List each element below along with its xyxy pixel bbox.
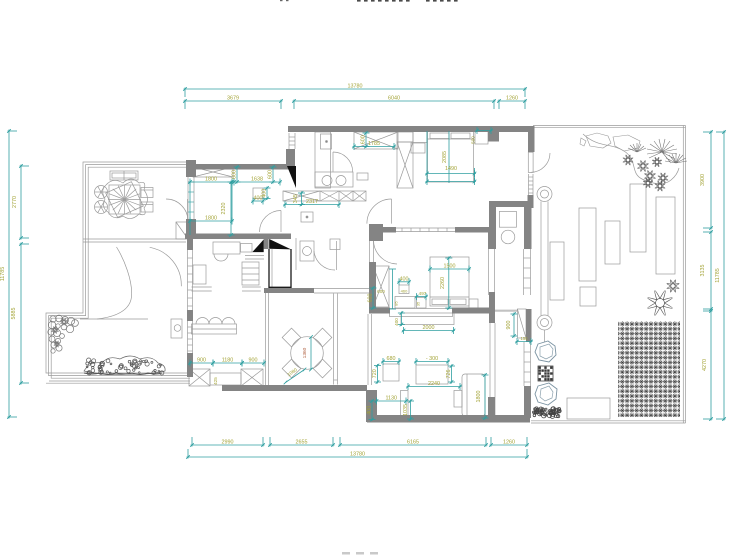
svg-text:35: 35 <box>416 301 421 306</box>
svg-text:150: 150 <box>521 336 529 341</box>
svg-text:2655: 2655 <box>296 440 308 446</box>
svg-text:1785: 1785 <box>368 141 380 147</box>
svg-text:400: 400 <box>400 276 409 282</box>
svg-text:460: 460 <box>401 289 408 294</box>
svg-text:2260: 2260 <box>440 277 446 289</box>
svg-text:400: 400 <box>394 318 399 326</box>
svg-text:1800: 1800 <box>476 391 482 403</box>
svg-text:400: 400 <box>367 406 373 415</box>
svg-text:2000: 2000 <box>423 325 435 331</box>
svg-text:1638: 1638 <box>251 177 263 183</box>
svg-text:600: 600 <box>232 170 238 179</box>
svg-text:1800: 1800 <box>205 216 217 222</box>
svg-text:85: 85 <box>394 301 399 306</box>
svg-text:900: 900 <box>197 358 206 364</box>
svg-text:2240: 2240 <box>428 381 440 387</box>
svg-text:720: 720 <box>372 369 378 378</box>
svg-text:1490: 1490 <box>445 166 457 172</box>
svg-text:2990: 2990 <box>222 440 234 446</box>
svg-text:425: 425 <box>213 377 218 385</box>
svg-text:13780: 13780 <box>348 84 363 90</box>
svg-text:11785: 11785 <box>0 267 6 282</box>
svg-text:497: 497 <box>419 291 427 296</box>
svg-text:1130: 1130 <box>385 396 397 402</box>
svg-text:1360: 1360 <box>302 347 308 358</box>
svg-text:726: 726 <box>446 370 452 379</box>
svg-text:5885: 5885 <box>11 308 17 320</box>
svg-text:6040: 6040 <box>388 96 400 102</box>
svg-text:1260: 1260 <box>506 96 518 102</box>
svg-text:11785: 11785 <box>715 268 721 283</box>
svg-text:- 300: - 300 <box>426 356 438 362</box>
svg-text:1035: 1035 <box>403 404 409 416</box>
svg-text:600: 600 <box>377 289 385 294</box>
svg-text:680: 680 <box>387 356 396 362</box>
svg-text:2317: 2317 <box>306 199 318 205</box>
svg-text:2085: 2085 <box>442 151 448 163</box>
svg-text:600: 600 <box>268 170 274 179</box>
svg-text:3900: 3900 <box>700 174 706 186</box>
svg-text:400: 400 <box>262 189 268 198</box>
svg-text:2770: 2770 <box>12 196 18 208</box>
svg-text:345: 345 <box>293 194 299 203</box>
svg-text:1180: 1180 <box>222 358 234 364</box>
svg-text:900: 900 <box>249 358 258 364</box>
svg-text:2320: 2320 <box>221 203 227 215</box>
svg-text:500: 500 <box>471 136 476 144</box>
svg-text:4270: 4270 <box>702 359 708 371</box>
svg-text:1800: 1800 <box>205 177 217 183</box>
svg-text:1500: 1500 <box>444 264 456 270</box>
svg-text:900: 900 <box>506 321 512 330</box>
svg-text:6165: 6165 <box>407 440 419 446</box>
svg-text:600: 600 <box>361 135 367 144</box>
svg-text:3135: 3135 <box>700 265 706 277</box>
svg-text:13780: 13780 <box>350 452 365 458</box>
svg-text:1260: 1260 <box>503 440 515 446</box>
svg-text:3679: 3679 <box>227 96 239 102</box>
svg-text:600: 600 <box>368 294 374 303</box>
